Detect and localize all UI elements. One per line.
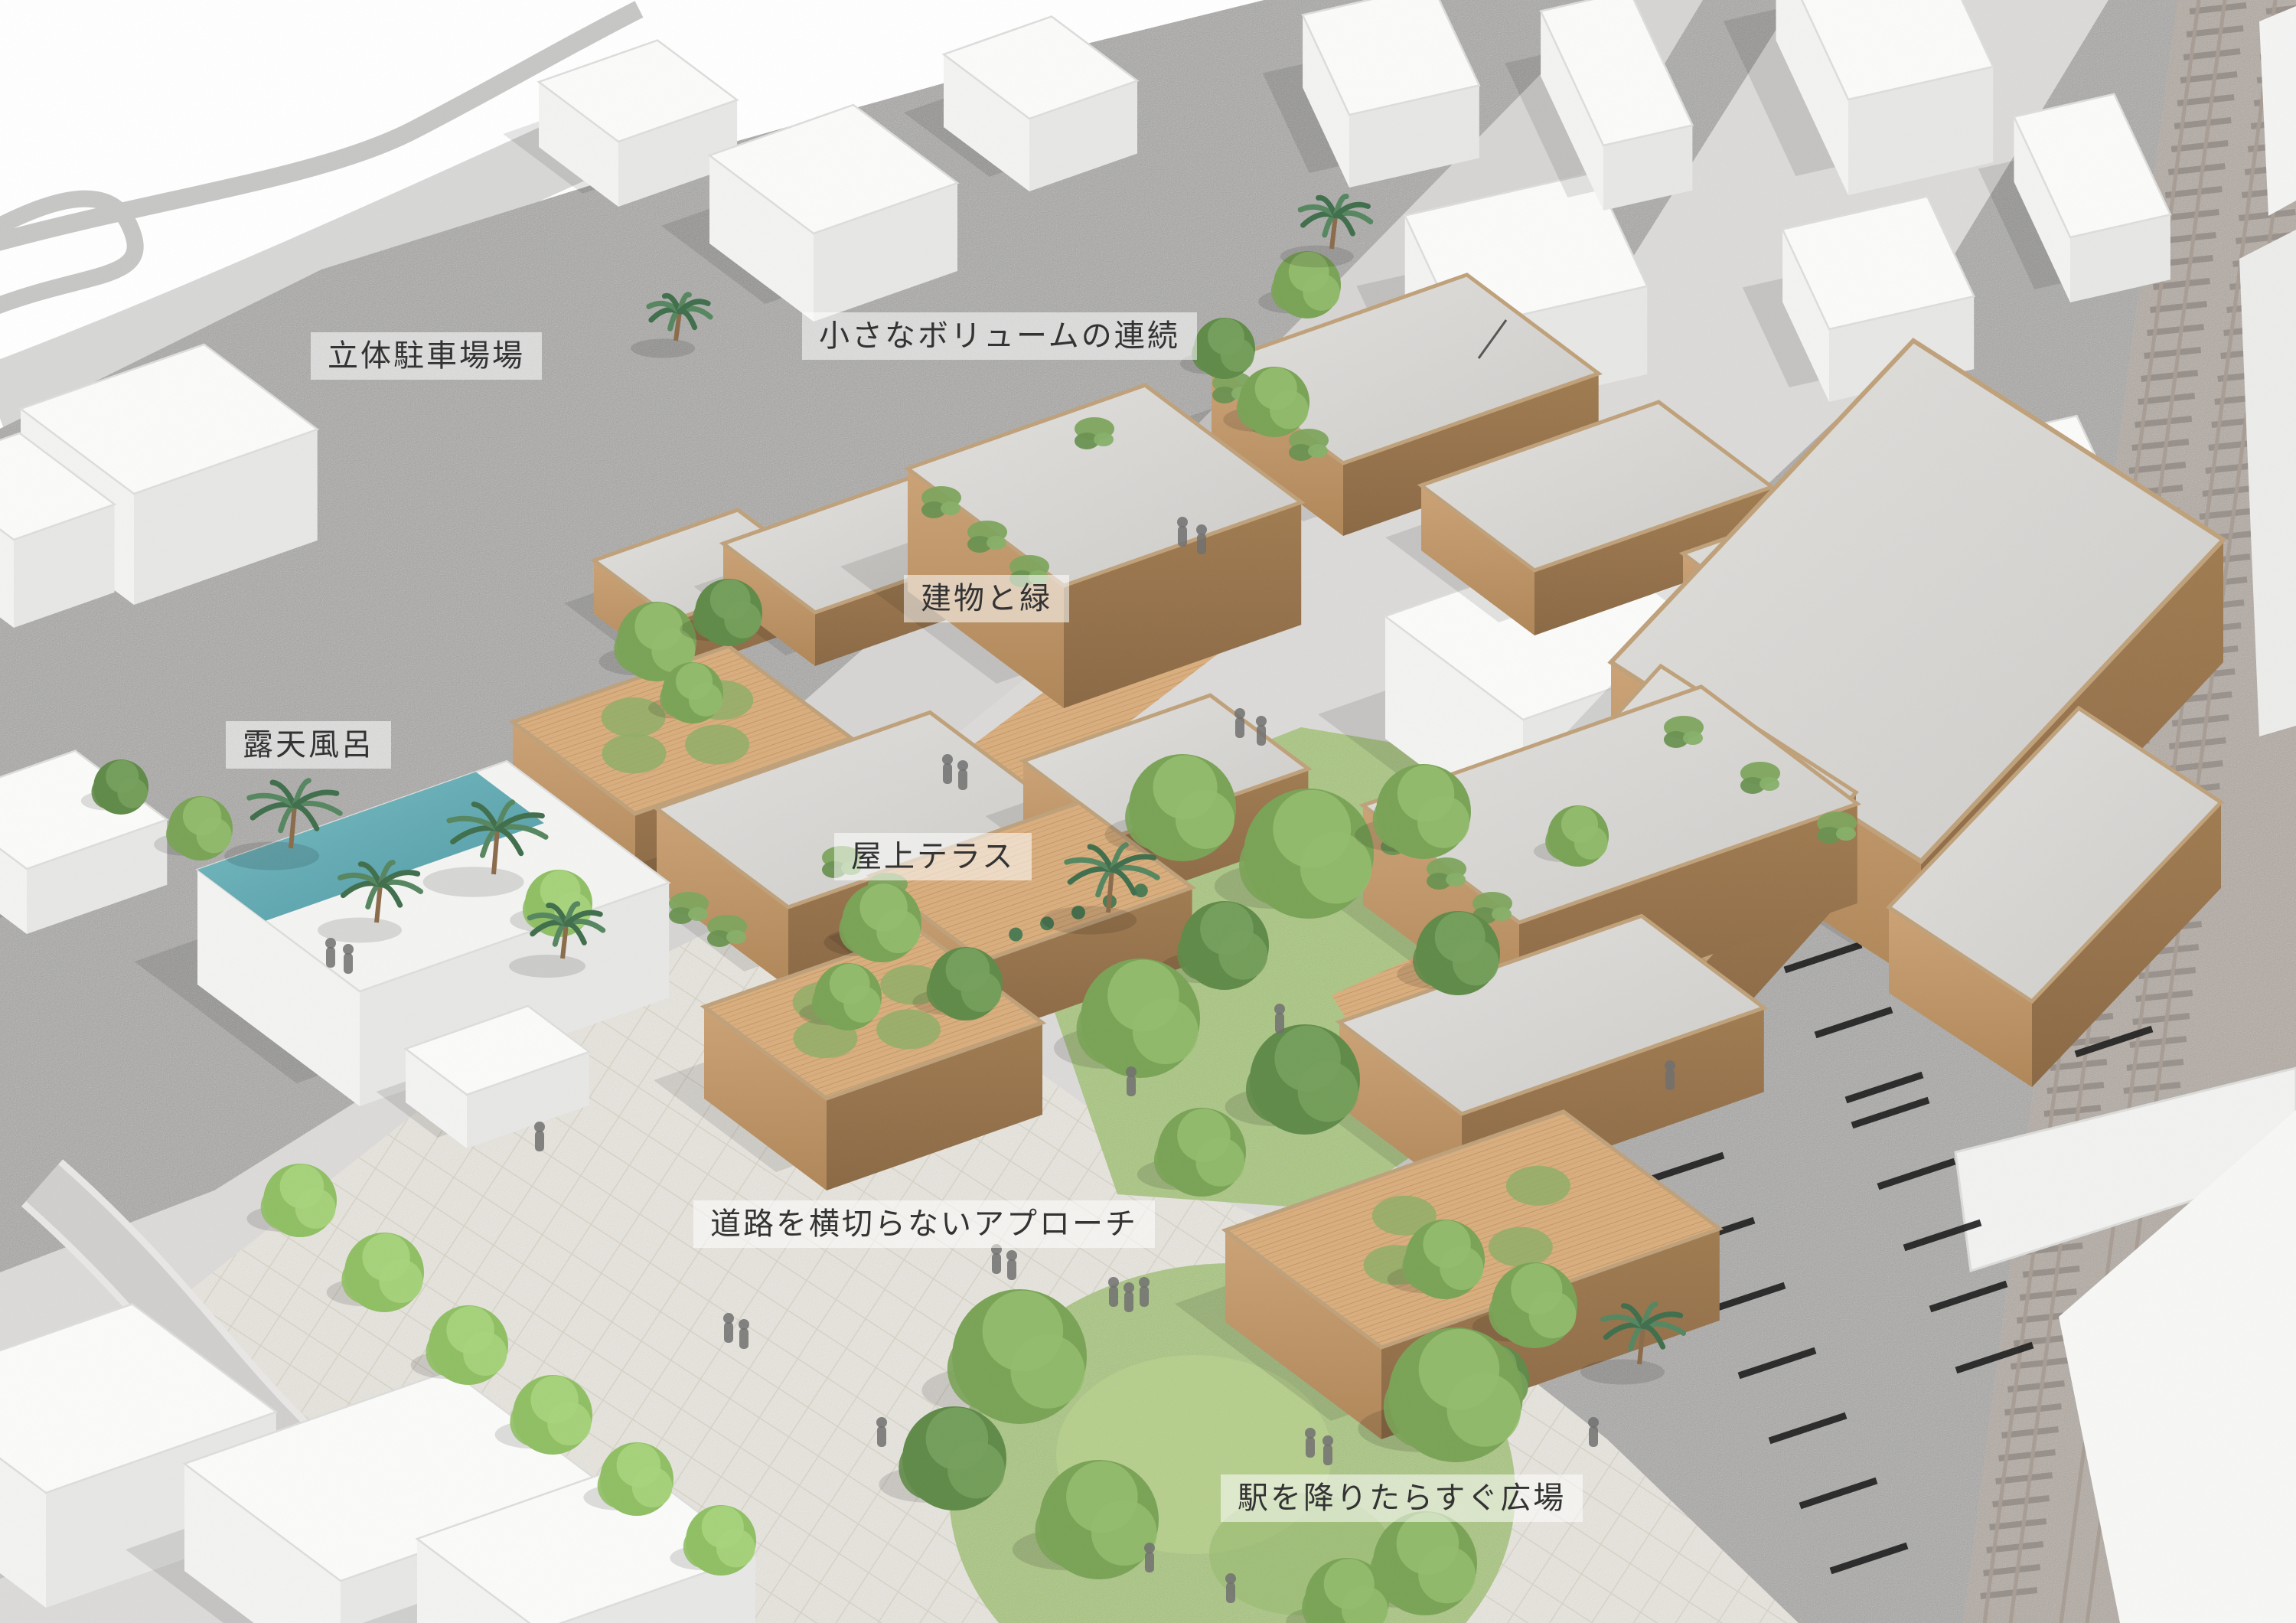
architectural-site-rendering: 立体駐車場場 小さなボリュームの連続 建物と緑 露天風呂 屋上テラス 道路を横切…: [0, 0, 2296, 1623]
label-rooftop-terrace: 屋上テラス: [834, 833, 1032, 880]
label-buildings-and-green: 建物と緑: [904, 575, 1069, 622]
label-open-air-bath: 露天風呂: [226, 721, 391, 769]
texture-overlay: [0, 0, 2296, 1623]
label-multistory-parking: 立体駐車場場: [311, 332, 542, 380]
label-approach: 道路を横切らないアプローチ: [693, 1200, 1155, 1248]
global-grain: [0, 0, 2296, 1623]
label-small-volumes: 小さなボリュームの連続: [802, 312, 1197, 360]
site-plan-canvas: [0, 0, 2296, 1623]
label-station-plaza: 駅を降りたらすぐ広場: [1221, 1474, 1583, 1522]
